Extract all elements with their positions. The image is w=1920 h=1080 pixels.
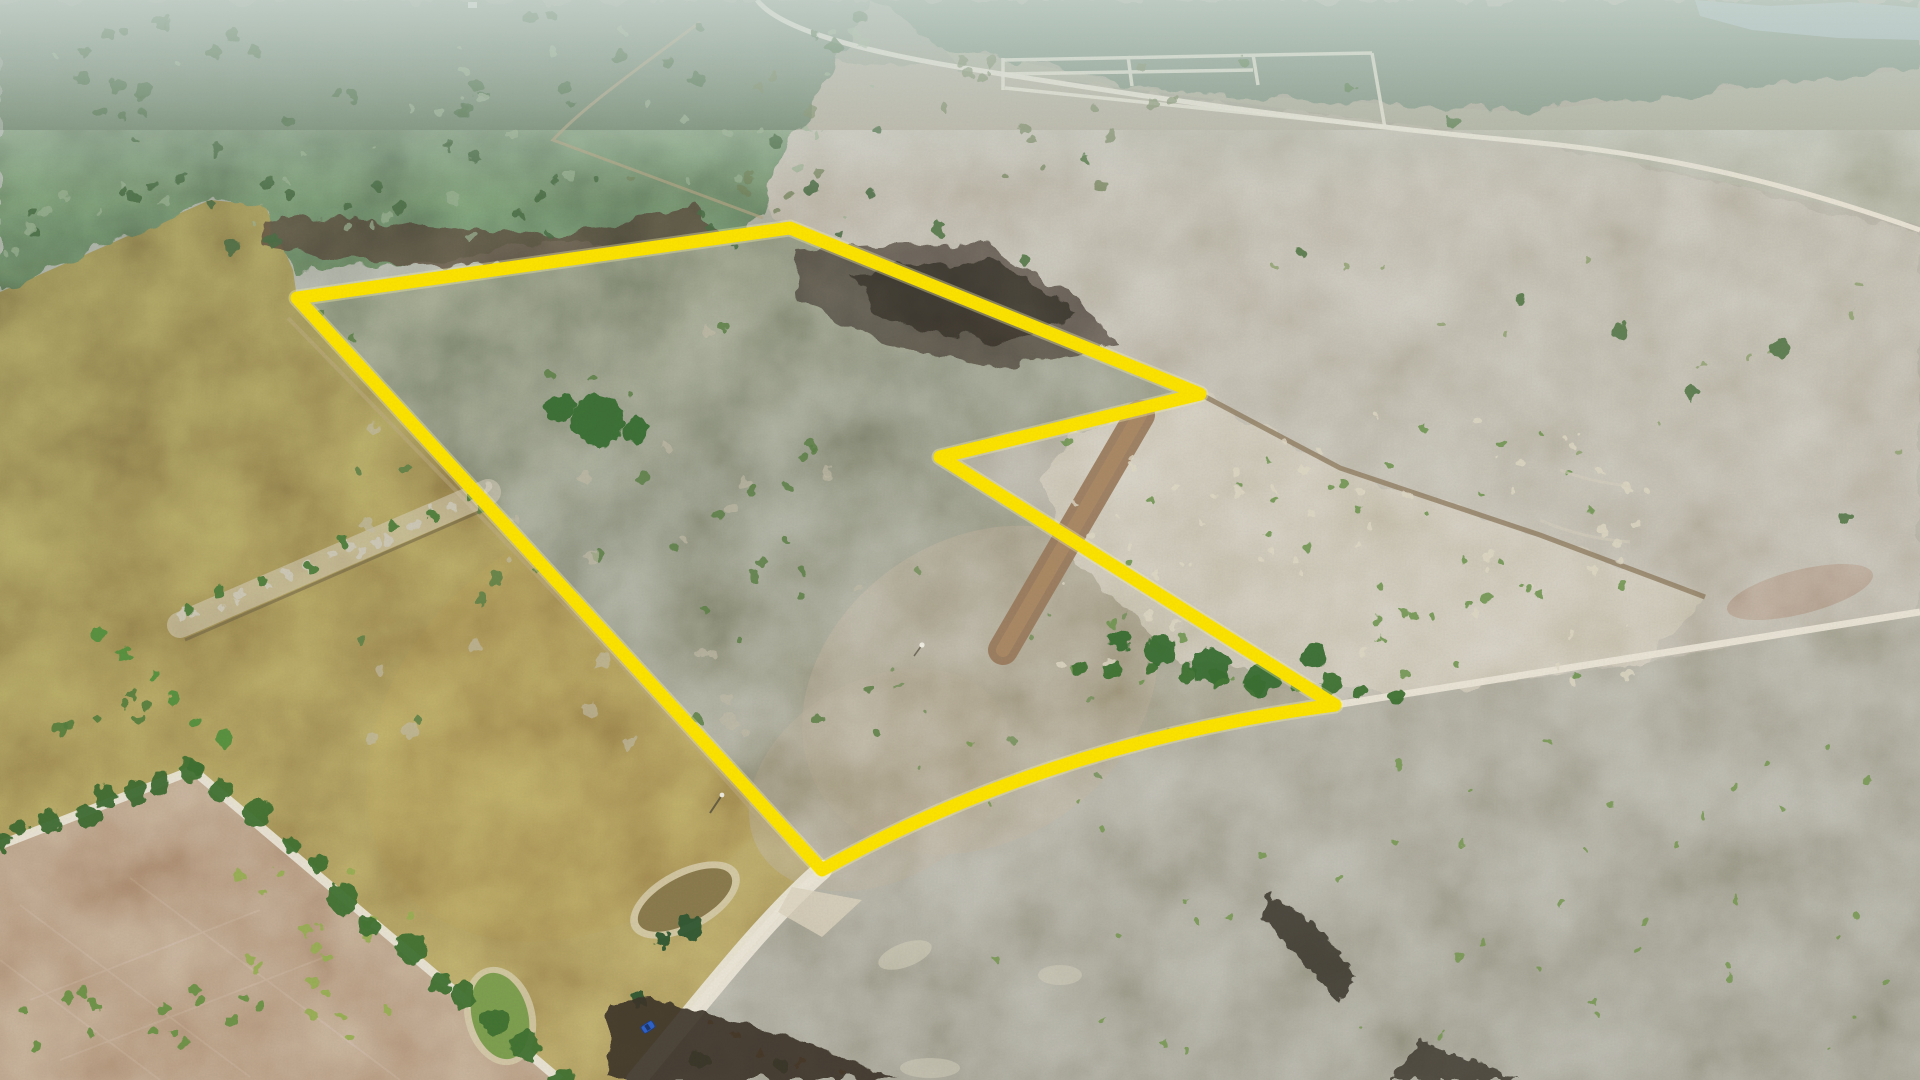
atmospheric-haze [0,0,1920,195]
aerial-photo-stage [0,0,1920,1080]
aerial-photo [0,0,1920,1080]
